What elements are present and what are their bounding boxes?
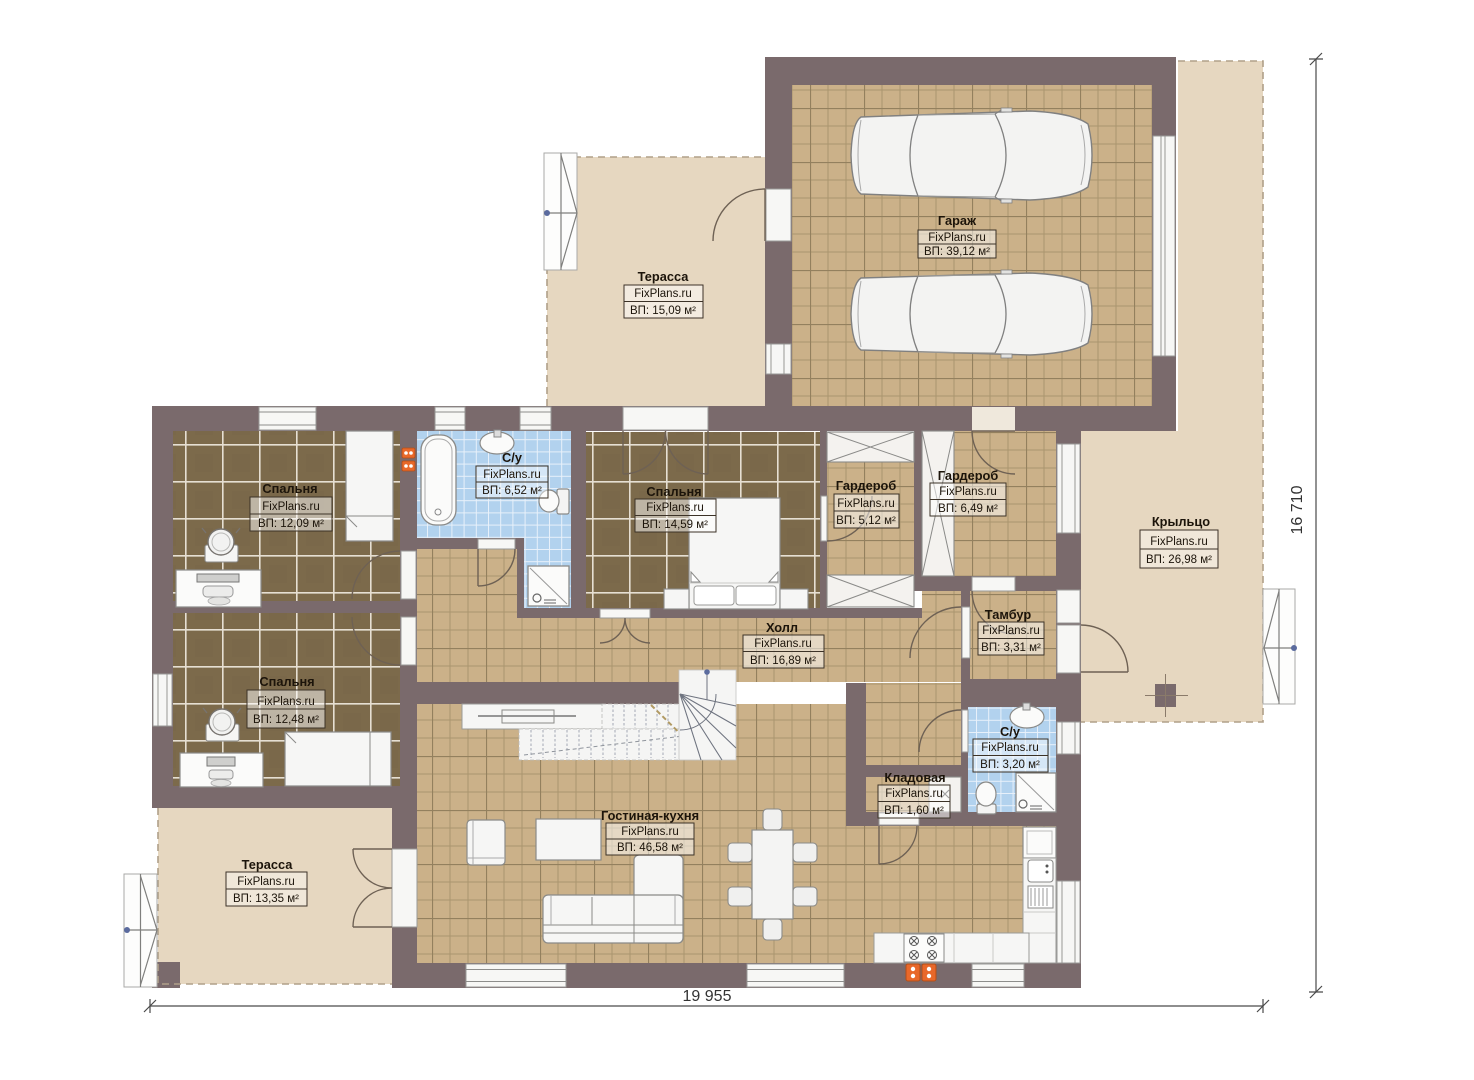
svg-text:ВП: 16,89 м²: ВП: 16,89 м² bbox=[750, 655, 816, 667]
svg-text:ВП: 13,35 м²: ВП: 13,35 м² bbox=[233, 893, 299, 905]
svg-text:Гараж: Гараж bbox=[938, 213, 977, 228]
svg-text:FixPlans.ru: FixPlans.ru bbox=[982, 625, 1040, 637]
svg-text:FixPlans.ru: FixPlans.ru bbox=[837, 498, 895, 510]
svg-text:FixPlans.ru: FixPlans.ru bbox=[754, 638, 812, 650]
svg-text:ВП: 12,48 м²: ВП: 12,48 м² bbox=[253, 714, 319, 726]
svg-text:FixPlans.ru: FixPlans.ru bbox=[1150, 536, 1208, 548]
svg-text:Терасса: Терасса bbox=[638, 269, 690, 284]
svg-text:С/у: С/у bbox=[1000, 724, 1021, 739]
svg-text:FixPlans.ru: FixPlans.ru bbox=[928, 232, 986, 244]
svg-text:ВП: 26,98 м²: ВП: 26,98 м² bbox=[1146, 554, 1212, 566]
svg-text:ВП: 5,12 м²: ВП: 5,12 м² bbox=[836, 515, 896, 527]
svg-text:Крыльцо: Крыльцо bbox=[1152, 514, 1210, 529]
svg-text:ВП: 39,12 м²: ВП: 39,12 м² bbox=[924, 246, 990, 258]
svg-text:ВП: 6,49 м²: ВП: 6,49 м² bbox=[938, 503, 998, 515]
svg-text:ВП: 3,20 м²: ВП: 3,20 м² bbox=[980, 759, 1040, 771]
svg-text:Кладовая: Кладовая bbox=[884, 770, 945, 785]
svg-text:Холл: Холл bbox=[766, 620, 798, 635]
svg-text:С/у: С/у bbox=[502, 450, 523, 465]
svg-text:Спальня: Спальня bbox=[262, 481, 317, 496]
svg-text:FixPlans.ru: FixPlans.ru bbox=[237, 876, 295, 888]
svg-text:FixPlans.ru: FixPlans.ru bbox=[483, 469, 541, 481]
svg-text:ВП: 6,52 м²: ВП: 6,52 м² bbox=[482, 485, 542, 497]
svg-text:Спальня: Спальня bbox=[259, 674, 314, 689]
svg-text:Спальня: Спальня bbox=[646, 484, 701, 499]
svg-text:Гардероб: Гардероб bbox=[938, 468, 999, 483]
svg-text:ВП: 14,59 м²: ВП: 14,59 м² bbox=[642, 519, 708, 531]
svg-text:FixPlans.ru: FixPlans.ru bbox=[262, 501, 320, 513]
svg-text:FixPlans.ru: FixPlans.ru bbox=[981, 742, 1039, 754]
svg-text:Гостиная-кухня: Гостиная-кухня bbox=[601, 808, 699, 823]
svg-text:FixPlans.ru: FixPlans.ru bbox=[634, 288, 692, 300]
svg-text:ВП: 15,09 м²: ВП: 15,09 м² bbox=[630, 305, 696, 317]
svg-text:Гардероб: Гардероб bbox=[836, 478, 897, 493]
svg-text:19 955: 19 955 bbox=[683, 988, 732, 1005]
svg-text:ВП: 46,58 м²: ВП: 46,58 м² bbox=[617, 842, 683, 854]
svg-text:FixPlans.ru: FixPlans.ru bbox=[257, 696, 315, 708]
svg-text:16 710: 16 710 bbox=[1289, 485, 1306, 534]
svg-text:FixPlans.ru: FixPlans.ru bbox=[939, 486, 997, 498]
svg-text:FixPlans.ru: FixPlans.ru bbox=[646, 502, 704, 514]
svg-text:ВП: 3,31 м²: ВП: 3,31 м² bbox=[981, 642, 1041, 654]
svg-text:Тамбур: Тамбур bbox=[985, 607, 1032, 622]
svg-text:FixPlans.ru: FixPlans.ru bbox=[621, 826, 679, 838]
svg-text:Терасса: Терасса bbox=[242, 857, 294, 872]
svg-text:ВП: 12,09 м²: ВП: 12,09 м² bbox=[258, 518, 324, 530]
svg-text:FixPlans.ru: FixPlans.ru bbox=[885, 788, 943, 800]
svg-text:ВП: 1,60 м²: ВП: 1,60 м² bbox=[884, 805, 944, 817]
